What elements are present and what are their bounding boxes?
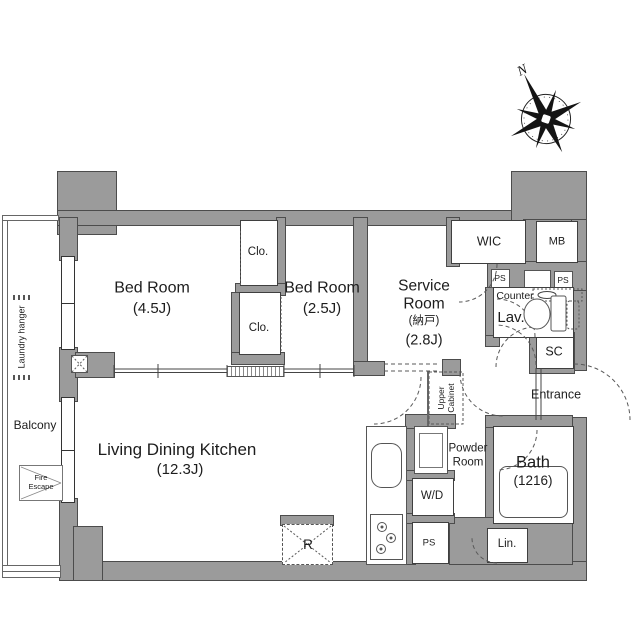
compass-north-label: N xyxy=(514,62,530,80)
bedroom1-size: (4.5J) xyxy=(133,300,171,318)
bedroom1-name: Bed Room xyxy=(114,280,190,299)
kitchen-stove xyxy=(370,514,403,560)
wall-left-a xyxy=(60,218,77,260)
ldk-size: (12.3J) xyxy=(157,461,204,479)
window-bedroom1 xyxy=(61,256,75,350)
wic-label: WIC xyxy=(477,235,501,250)
washer-dryer-label: W/D xyxy=(421,490,443,504)
mb-label: MB xyxy=(549,236,566,249)
service-room-name: Service Room xyxy=(382,278,466,315)
sliding-door-bedroom1 xyxy=(114,364,227,378)
bath-size: (1216) xyxy=(513,473,552,489)
ps-top-right-label: PS xyxy=(557,275,568,285)
laundry-hanger-label: Laundry hanger xyxy=(17,292,28,382)
balcony-rail-top xyxy=(2,215,59,221)
door-arc-entrance xyxy=(574,364,630,420)
wall-pillar-top-right xyxy=(512,172,586,225)
entrance-label: Entrance xyxy=(531,388,581,403)
floor-plan: N Bed Room (4.5J) Bed Room (2.5J) Servic… xyxy=(0,0,640,640)
bedroom2-name: Bed Room xyxy=(284,280,360,299)
compass-icon: N xyxy=(480,45,605,178)
bedroom2-size: (2.5J) xyxy=(303,300,341,318)
balcony-rail-left xyxy=(2,215,8,578)
powder-room-label: Powder Room xyxy=(441,442,495,469)
wall-upper-cabinet-line xyxy=(427,371,429,426)
service-dashed-partition xyxy=(384,364,438,371)
closet-bottom-label: Clo. xyxy=(249,322,269,336)
counter-label: Counter xyxy=(496,290,533,302)
linen-label: Lin. xyxy=(498,538,517,552)
ps-top-left-label: PS xyxy=(494,273,505,283)
sliding-door-bedroom2 xyxy=(284,364,354,378)
refrigerator-label: R xyxy=(303,537,313,553)
ldk-name: Living Dining Kitchen xyxy=(98,440,257,460)
service-room-alt: (納戸) xyxy=(409,315,440,329)
closet-top-label: Clo. xyxy=(248,246,268,260)
balcony-rail-bottom xyxy=(2,565,61,578)
sc-label: SC xyxy=(545,345,562,360)
wall-service-bottom-right xyxy=(443,360,460,375)
wall-bottom xyxy=(96,562,586,580)
door-arc-hall-powder xyxy=(460,373,503,416)
folding-partition xyxy=(227,366,284,377)
ps-bottom-label: PS xyxy=(423,537,436,548)
wall-service-bottom-left xyxy=(354,362,384,375)
wall-lav-left xyxy=(486,288,493,338)
window-ldk xyxy=(61,397,75,503)
bath-name: Bath xyxy=(516,453,550,472)
kitchen-sink xyxy=(371,443,402,488)
upper-cabinet-label: Upper Cabinet xyxy=(436,377,456,419)
fire-escape-label: Fire Escape xyxy=(21,474,61,492)
wall-top xyxy=(58,211,514,225)
powder-basin-inner xyxy=(419,433,443,468)
lav-label: Lav. xyxy=(497,309,524,327)
wall-pillar-bottom-left-step xyxy=(74,527,102,580)
service-room-size: (2.8J) xyxy=(405,332,442,349)
pipe-space-small-box xyxy=(71,355,88,373)
balcony-label: Balcony xyxy=(14,418,57,432)
wall-right-lower xyxy=(572,418,586,580)
